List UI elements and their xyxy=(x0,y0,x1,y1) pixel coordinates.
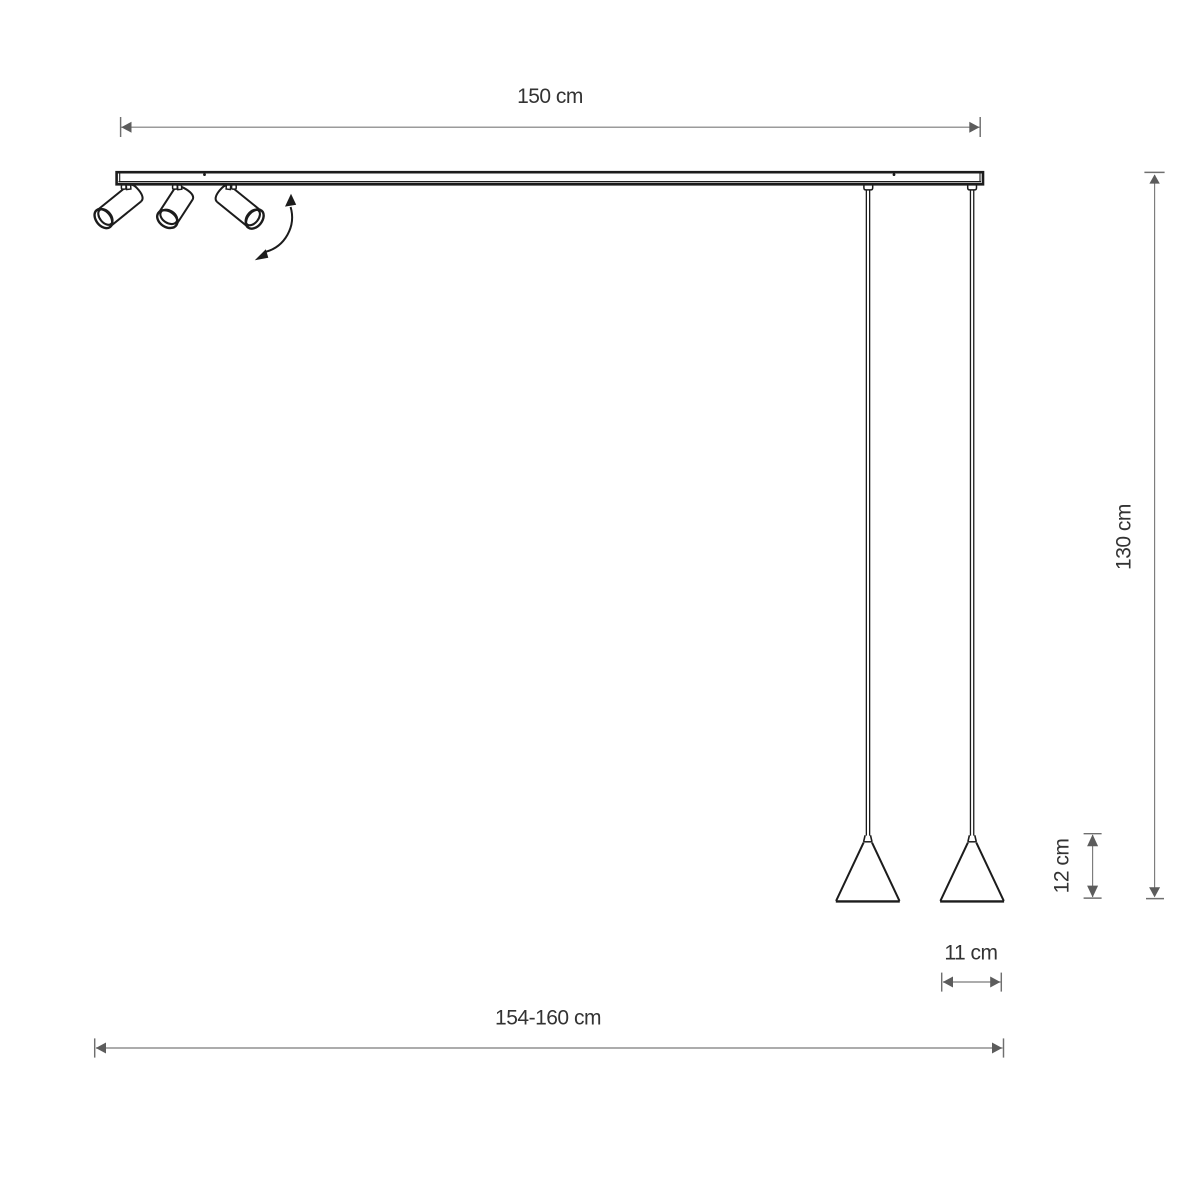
svg-text:12 cm: 12 cm xyxy=(1051,839,1074,894)
svg-text:150 cm: 150 cm xyxy=(517,85,583,108)
svg-text:154-160 cm: 154-160 cm xyxy=(495,1007,601,1030)
svg-text:130 cm: 130 cm xyxy=(1113,504,1136,570)
svg-text:11 cm: 11 cm xyxy=(944,941,997,964)
